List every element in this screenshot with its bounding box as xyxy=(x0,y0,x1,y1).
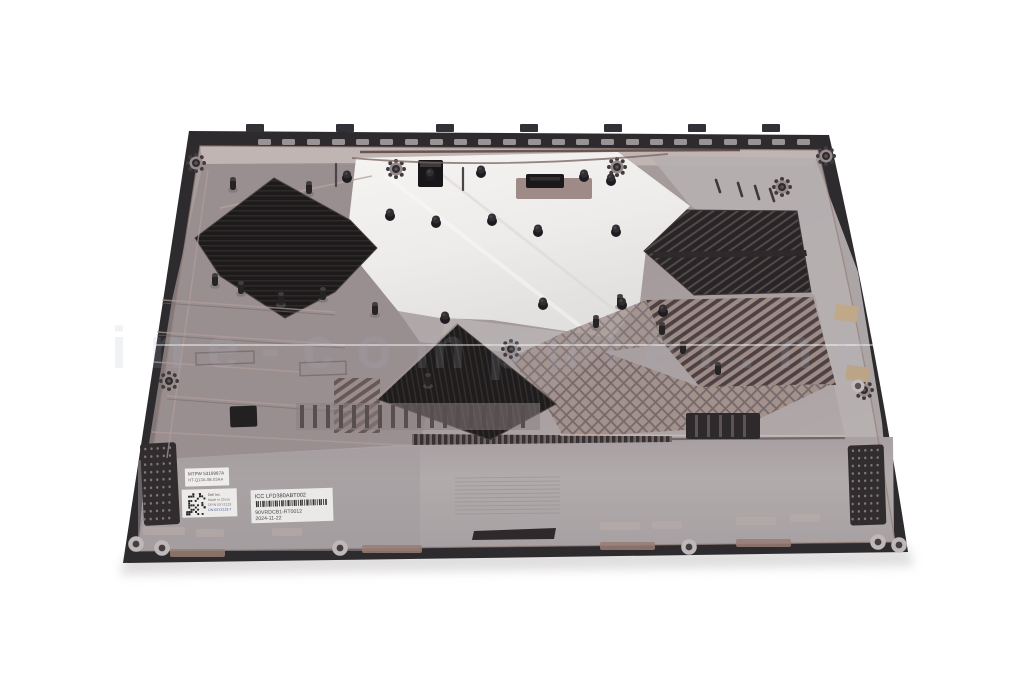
svg-text:ine-computer.ne: ine-computer.ne xyxy=(111,316,889,381)
